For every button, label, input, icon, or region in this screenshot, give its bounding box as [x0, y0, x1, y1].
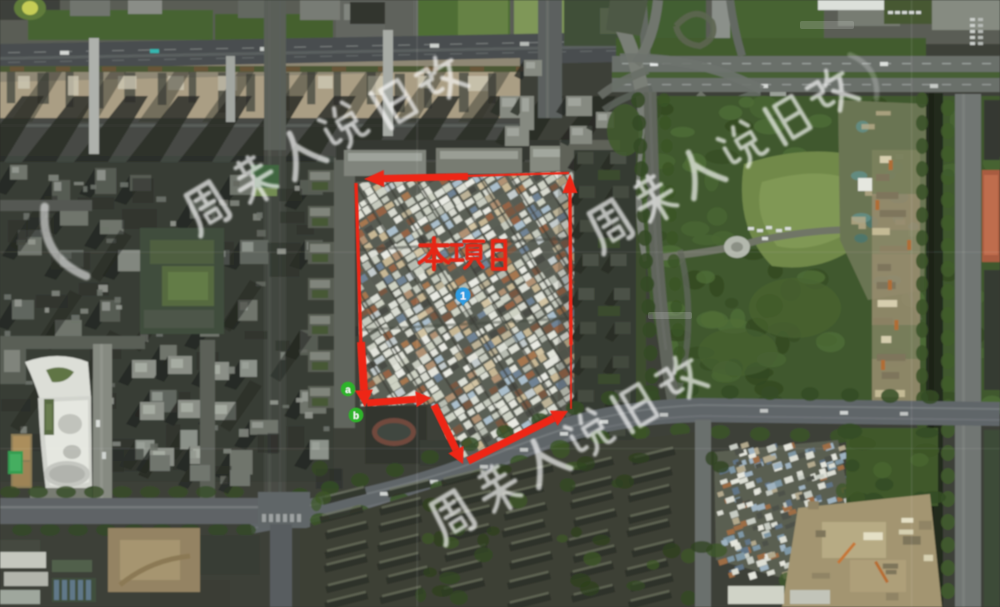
- svg-text:1: 1: [460, 291, 466, 303]
- svg-text:b: b: [353, 411, 359, 422]
- svg-text:a: a: [345, 385, 351, 396]
